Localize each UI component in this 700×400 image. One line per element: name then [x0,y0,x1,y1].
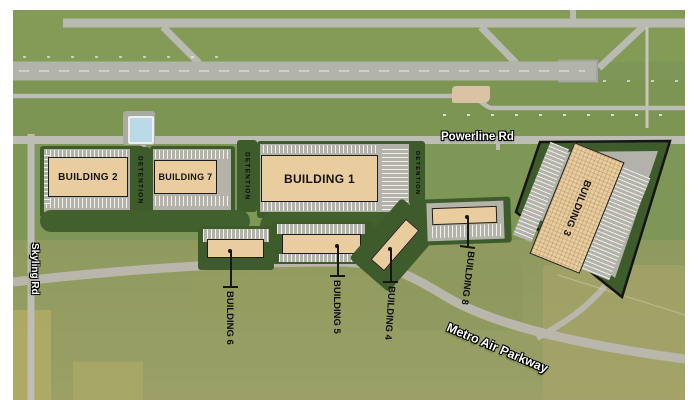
pond [128,116,154,144]
detention-label: DETENTION [244,152,251,200]
building-3-label: BUILDING 3 [561,178,594,237]
building-5-parking [277,224,365,234]
building-2: BUILDING 2 [48,157,128,197]
leader-bar [223,286,238,288]
trailer-stalls [263,202,379,211]
leader-bar [383,281,398,283]
taxiway-connector-mid [481,27,516,63]
leader-bar [330,275,345,277]
building-5-callout-label: BUILDING 5 [331,280,342,334]
leader-line [337,246,339,276]
building-6-callout-label: BUILDING 6 [224,291,235,345]
building-5 [282,234,361,254]
airfield-markings [603,80,683,82]
perimeter-road [13,96,685,108]
taxiway-connector-end [599,23,647,68]
building-2-label: BUILDING 2 [58,172,118,183]
building-7: BUILDING 7 [154,160,217,194]
building-6 [207,239,264,258]
building-7-label: BUILDING 7 [158,172,212,182]
leader-line [467,217,469,247]
building3-access-road [537,286,605,338]
trailer-stalls [155,196,229,206]
powerline-road-label: Powerline Rd [441,131,514,143]
trailer-stalls [46,198,129,208]
leader-line [230,251,232,287]
map-canvas: BUILDING 2 DETENTION BUILDING 7 DETENTIO… [13,10,685,400]
site-plan-screenshot: BUILDING 2 DETENTION BUILDING 7 DETENTIO… [0,0,700,400]
building-1-label: BUILDING 1 [284,172,355,186]
skyling-road-label: Skyling Rd [29,243,40,295]
building-1: BUILDING 1 [261,155,378,202]
detention-label: DETENTION [414,151,420,195]
trailer-stalls [155,150,229,159]
detention-strip-2: DETENTION [237,140,257,212]
apron-pad [452,86,490,103]
leader-line [390,249,392,282]
trailer-stalls [263,145,379,153]
airfield-markings [23,56,233,58]
detention-strip-1: DETENTION [130,147,150,213]
airfield-markings [443,114,663,116]
detention-label: DETENTION [137,156,144,204]
detention-strip-3: DETENTION [409,142,425,205]
